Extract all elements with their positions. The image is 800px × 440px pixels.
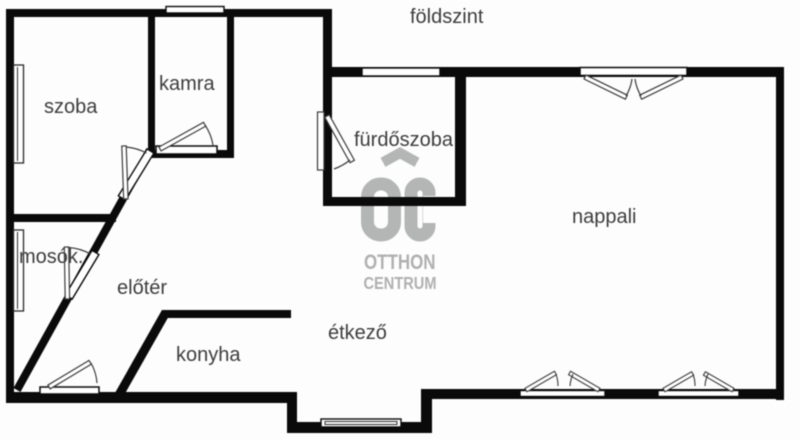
svg-text:nappali: nappali <box>572 206 637 228</box>
svg-text:előtér: előtér <box>117 277 167 299</box>
svg-text:OTTHON: OTTHON <box>364 251 436 274</box>
svg-text:CENTRUM: CENTRUM <box>364 273 437 293</box>
svg-text:fürdőszoba: fürdőszoba <box>354 129 454 151</box>
svg-text:kamra: kamra <box>159 73 215 95</box>
svg-text:étkező: étkező <box>328 322 387 344</box>
svg-text:szoba: szoba <box>44 96 98 118</box>
svg-text:földszint: földszint <box>410 6 484 28</box>
svg-text:mosók.: mosók. <box>19 246 83 268</box>
svg-text:konyha: konyha <box>176 344 241 366</box>
